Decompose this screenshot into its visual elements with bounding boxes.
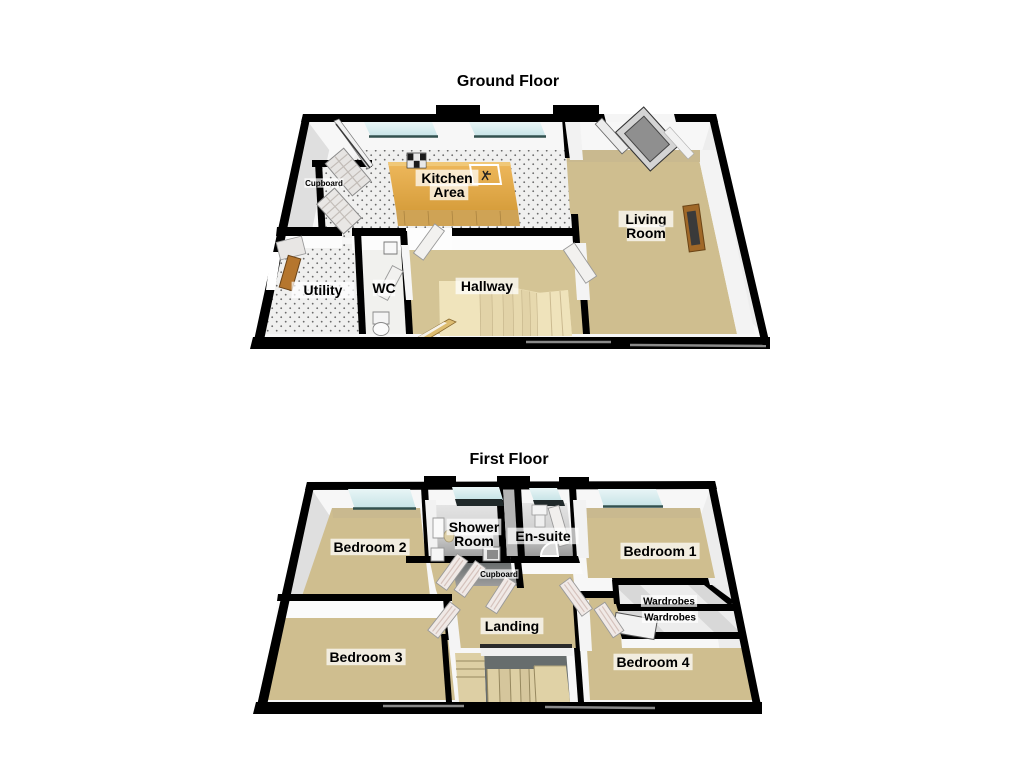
svg-text:Hallway: Hallway xyxy=(461,278,513,294)
svg-text:Bedroom 4: Bedroom 4 xyxy=(616,654,689,670)
svg-text:Utility: Utility xyxy=(304,282,343,298)
svg-text:Bedroom 2: Bedroom 2 xyxy=(333,539,406,555)
svg-text:Area: Area xyxy=(433,184,464,200)
svg-text:Room: Room xyxy=(626,225,666,241)
svg-text:Landing: Landing xyxy=(485,618,539,634)
svg-text:First Floor: First Floor xyxy=(469,451,548,468)
svg-text:Wardrobes: Wardrobes xyxy=(643,597,695,608)
svg-text:WC: WC xyxy=(372,280,395,296)
svg-text:Wardrobes: Wardrobes xyxy=(644,613,696,624)
svg-text:Cupboard: Cupboard xyxy=(305,179,343,188)
svg-text:Bedroom 3: Bedroom 3 xyxy=(329,649,402,665)
svg-text:Bedroom 1: Bedroom 1 xyxy=(623,543,696,559)
svg-text:En-suite: En-suite xyxy=(515,528,570,544)
svg-text:Cupboard: Cupboard xyxy=(480,570,518,579)
svg-text:Ground Floor: Ground Floor xyxy=(457,73,559,90)
svg-text:Room: Room xyxy=(454,533,494,549)
